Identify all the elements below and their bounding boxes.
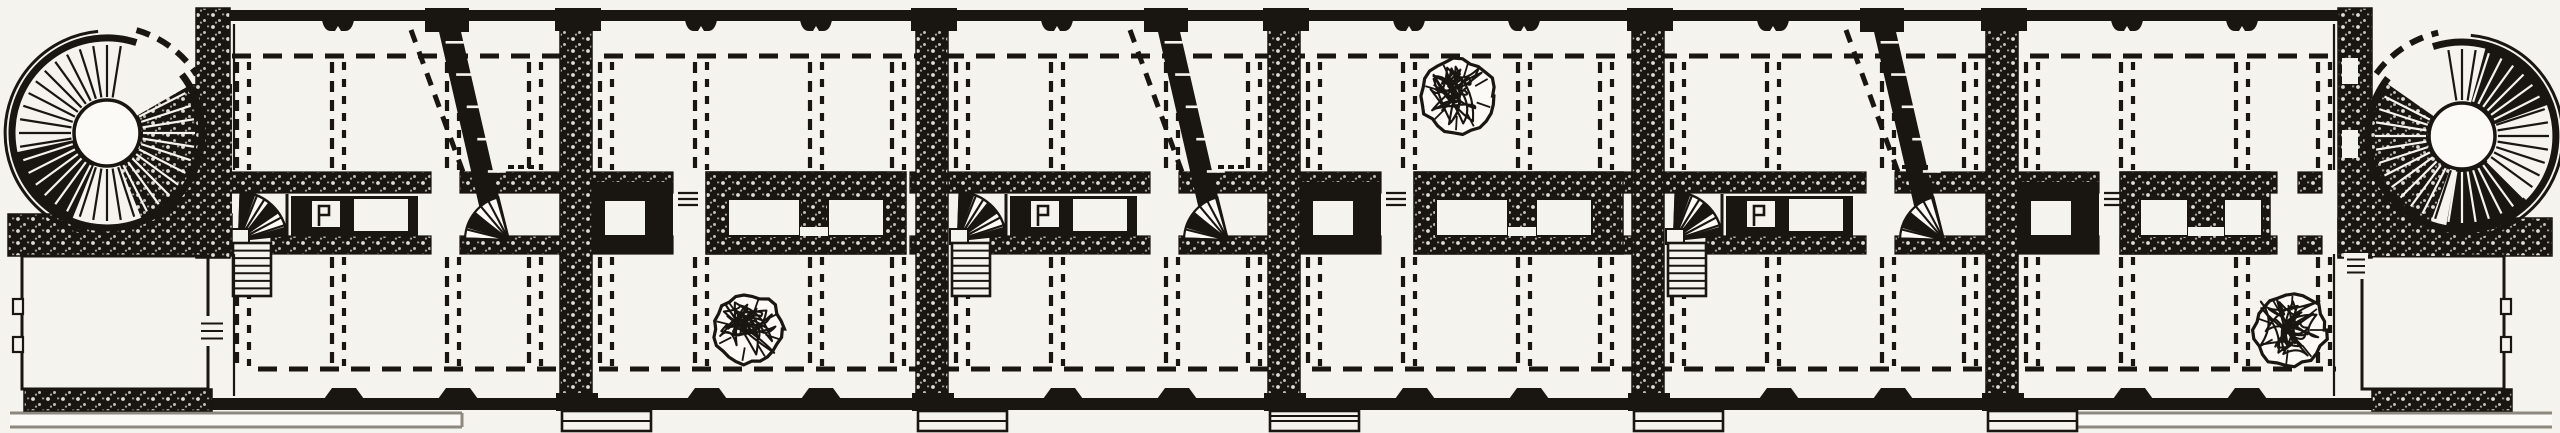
porch-steps [1634, 411, 1723, 431]
corridor-portico-frame [1414, 172, 1623, 254]
floor-plan-figure [0, 0, 2560, 433]
corridor-lower-wall [271, 236, 560, 254]
corridor-vestibule-frame [588, 182, 673, 254]
corridor-door-frame [1726, 196, 1853, 236]
facade-window-reveal [13, 337, 23, 352]
porch-steps [1270, 411, 1359, 431]
ceiling-rose-scribble [2253, 294, 2328, 367]
corridor-door-frame [1010, 196, 1137, 236]
corridor-vestibule-frame [1296, 182, 1381, 254]
corridor-door-frame [291, 196, 418, 236]
porch-steps [562, 411, 651, 431]
facade-window-reveal [2501, 299, 2511, 314]
porch-steps [1988, 411, 2077, 431]
tower-newel-well [2429, 103, 2495, 169]
tower-newel-well [74, 100, 140, 166]
porch-steps [918, 411, 1007, 431]
facade-window-reveal [2501, 337, 2511, 352]
corridor-upper-wall [1664, 172, 1986, 193]
corridor-upper-wall [229, 172, 560, 193]
corridor-portico-frame [706, 172, 906, 254]
plan-svg [0, 0, 2560, 433]
corridor-vestibule-frame [2014, 182, 2099, 254]
wall-opening [2342, 58, 2358, 84]
corridor-portico-frame [2120, 172, 2270, 254]
wall-opening [2342, 130, 2358, 158]
corridor-upper-wall [948, 172, 1268, 193]
facade-window-reveal [13, 299, 23, 314]
